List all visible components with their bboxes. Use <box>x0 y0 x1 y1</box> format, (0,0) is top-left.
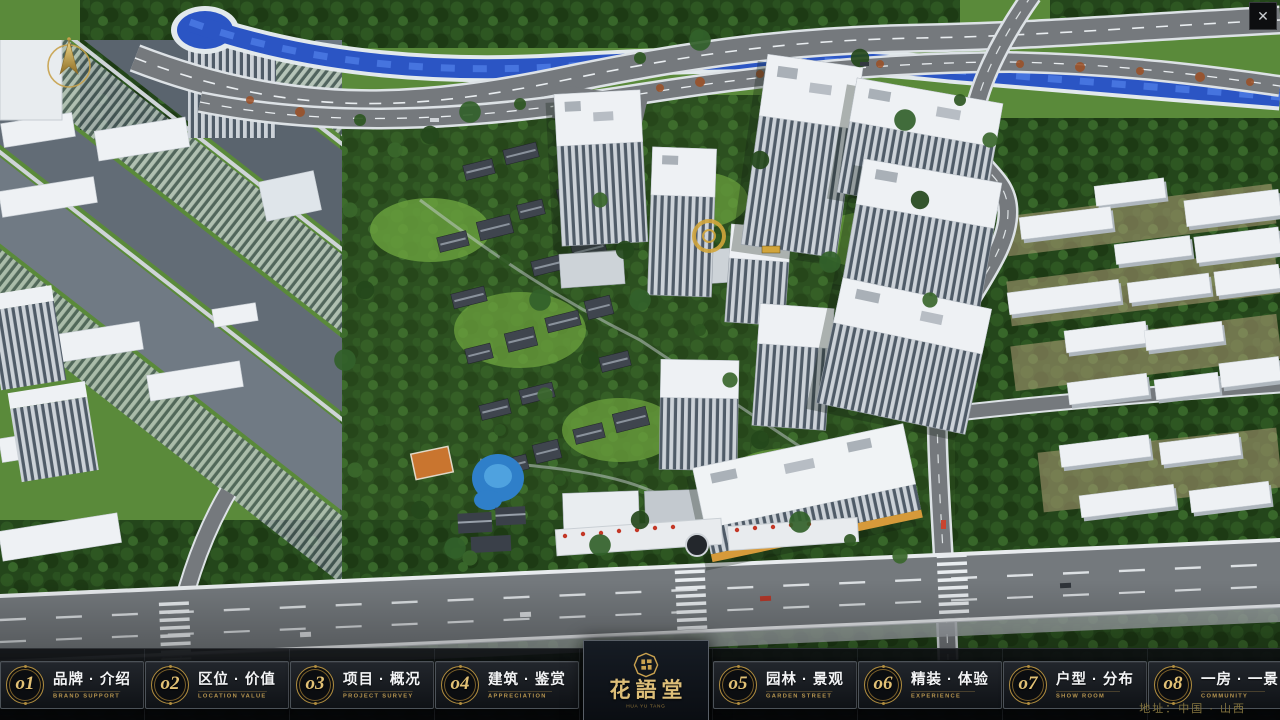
nav-item-garden-landscape[interactable]: o5 园林 · 景观 GARDEN STREET <box>713 661 857 709</box>
nav-number-badge-icon: o4 <box>441 666 479 704</box>
nav-label: 精装 · 体验 <box>911 668 989 689</box>
bottom-nav-bar: o1 品牌 · 介绍 BRAND SUPPORT o2 区位 · 价值 LOCA… <box>0 648 1280 720</box>
nav-cell: o4 建筑 · 鉴赏 APPRECIATION <box>435 649 580 720</box>
nav-item-architecture[interactable]: o4 建筑 · 鉴赏 APPRECIATION <box>435 661 579 709</box>
logo-cell: 花語堂 HUA YU TANG <box>580 649 713 720</box>
nav-item-decoration-experience[interactable]: o6 精装 · 体验 EXPERIENCE <box>858 661 1002 709</box>
nav-item-floorplan-distribution[interactable]: o7 户型 · 分布 SHOW ROOM <box>1003 661 1147 709</box>
nav-number-badge-icon: o1 <box>6 666 44 704</box>
nav-label: 建筑 · 鉴赏 <box>488 668 566 689</box>
nav-label: 户型 · 分布 <box>1056 668 1134 689</box>
nav-sublabel: BRAND SUPPORT <box>53 691 120 699</box>
nav-label: 项目 · 概况 <box>343 668 428 689</box>
nav-number-badge-icon: o5 <box>719 666 757 704</box>
nav-number-badge-icon: o3 <box>296 666 334 704</box>
site-aerial-view[interactable] <box>0 0 1280 720</box>
nav-sublabel: PROJECT SURVEY <box>343 691 413 699</box>
nav-item-location-value[interactable]: o2 区位 · 价值 LOCATION VALUE <box>145 661 289 709</box>
nav-cell: o2 区位 · 价值 LOCATION VALUE <box>145 649 290 720</box>
nav-number-badge-icon: o7 <box>1009 666 1047 704</box>
brand-name: 花語堂 <box>605 680 688 701</box>
nav-sublabel: APPRECIATION <box>488 691 552 699</box>
nav-cell: o7 户型 · 分布 SHOW ROOM <box>1003 649 1148 720</box>
nav-item-brand-intro[interactable]: o1 品牌 · 介绍 BRAND SUPPORT <box>0 661 144 709</box>
nav-sublabel: EXPERIENCE <box>911 691 975 699</box>
nav-label: 品牌 · 介绍 <box>53 668 135 689</box>
nav-number-badge-icon: o6 <box>864 666 902 704</box>
project-address: 地址：中国 · 山西 <box>1139 700 1246 716</box>
brand-subtitle: HUA YU TANG <box>626 704 665 709</box>
nav-number-badge-icon: o8 <box>1154 666 1192 704</box>
nav-number-badge-icon: o2 <box>151 666 189 704</box>
nav-cell: o1 品牌 · 介绍 BRAND SUPPORT <box>0 649 145 720</box>
compass-icon[interactable] <box>38 30 100 98</box>
sales-presentation-window: ✕ o1 品牌 · 介绍 BRAND SUPPORT o2 区位 · 价值 LO… <box>0 0 1280 720</box>
nav-sublabel: SHOW ROOM <box>1056 691 1120 699</box>
close-button[interactable]: ✕ <box>1249 2 1277 30</box>
nav-sublabel: GARDEN STREET <box>766 691 832 699</box>
nav-label: 一房 · 一景 <box>1201 668 1279 689</box>
brand-logo-panel[interactable]: 花語堂 HUA YU TANG <box>583 640 709 720</box>
nav-sublabel: COMMUNITY <box>1201 691 1265 699</box>
nav-label: 园林 · 景观 <box>766 668 847 689</box>
nav-sublabel: LOCATION VALUE <box>198 691 267 699</box>
nav-cell: o5 园林 · 景观 GARDEN STREET <box>713 649 858 720</box>
brand-seal-icon <box>633 652 659 678</box>
nav-cell: o6 精装 · 体验 EXPERIENCE <box>858 649 1003 720</box>
entrance-plaza <box>686 534 708 556</box>
nav-label: 区位 · 价值 <box>198 668 282 689</box>
nav-cell: o3 项目 · 概况 PROJECT SURVEY <box>290 649 435 720</box>
nav-item-project-survey[interactable]: o3 项目 · 概况 PROJECT SURVEY <box>290 661 434 709</box>
